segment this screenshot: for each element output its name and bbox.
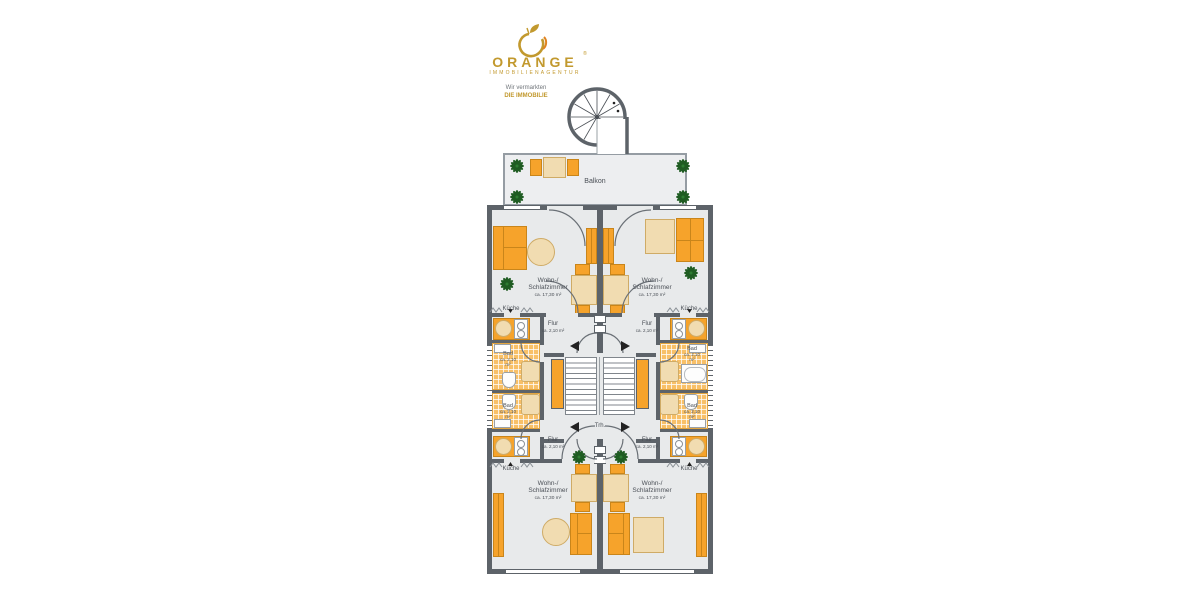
window-bottom-left <box>506 570 580 573</box>
shower-tray <box>660 361 679 382</box>
living-room-label-top-left: Wohn-/ Schlafzimmer ca. 17,30 m² <box>520 277 576 298</box>
door-opening <box>562 459 595 463</box>
bath-label-bottom-left: Bad ca. 2,10 m² <box>495 403 521 420</box>
dining-chair <box>575 264 590 275</box>
door-opening <box>605 459 638 463</box>
rug-bottom-right <box>633 517 664 553</box>
hall-label-bottom-right: Flur ca. 2,10 m² <box>630 437 664 449</box>
shaft-right <box>636 359 649 409</box>
door-opening <box>540 420 544 437</box>
stair-wall-stub <box>544 353 564 357</box>
door-opening <box>680 313 696 317</box>
balcony-door-opening-right <box>617 206 653 210</box>
door-opening <box>540 345 544 362</box>
brand-name: ORANGE <box>475 54 595 70</box>
dining-chair <box>575 464 590 474</box>
door-opening <box>546 313 578 317</box>
bath-label-top-right: Bad ca. 2,10 m² <box>679 346 705 363</box>
door-opening <box>504 459 520 463</box>
stair-flight-left <box>565 357 597 415</box>
window-top-left <box>504 206 540 209</box>
shaft-box <box>594 315 606 323</box>
shaft-box <box>594 446 606 454</box>
balcony-label: Balkon <box>557 178 633 186</box>
balcony-chair-left <box>530 159 542 176</box>
stove <box>672 319 686 339</box>
wall-h <box>492 340 540 343</box>
kitchen-label-bottom-right: Küche <box>672 466 706 473</box>
kitchen-label-top-right: Küche <box>672 306 706 313</box>
brand-subtitle: IMMOBILIENAGENTUR <box>475 71 595 77</box>
bath-label-top-left: Bad ca. 2,10 m² <box>495 351 521 368</box>
bath-sink <box>689 419 706 428</box>
stair-divider <box>599 357 600 415</box>
door-opening <box>656 345 660 362</box>
balcony-door-opening-left <box>547 206 583 210</box>
sofa-top-left <box>493 226 527 270</box>
bath-label-bottom-right: Bad ca. 2,10 m² <box>679 403 705 420</box>
brand-tagline-line2: DIE IMMOBILIE <box>484 93 568 100</box>
stairwell-label: Trh. <box>584 423 616 430</box>
balcony-table <box>543 157 566 178</box>
kitchen-sink <box>688 320 705 337</box>
wall-h <box>492 390 540 393</box>
bed-frame-top-right <box>676 218 704 262</box>
kitchen-label-top-left: Küche <box>494 306 528 313</box>
round-table-top-left <box>527 238 555 266</box>
dining-chair <box>575 502 590 512</box>
kitchen-sink <box>495 438 512 455</box>
shower-tray <box>521 361 540 382</box>
hall-label-top-left: Flur ca. 2,10 m² <box>536 321 570 333</box>
stove <box>514 437 528 456</box>
shaft-box <box>594 325 606 333</box>
spiral-staircase <box>569 89 627 154</box>
round-table-bottom-left <box>542 518 570 546</box>
door-opening <box>622 313 654 317</box>
wall-h <box>660 429 708 432</box>
stove <box>672 437 686 456</box>
brand-logo-icon <box>519 24 546 56</box>
door-opening <box>504 313 520 317</box>
sofa-bottom-left <box>570 513 592 555</box>
window-side-left <box>487 346 492 428</box>
kitchen-sink <box>688 438 705 455</box>
stove <box>514 319 528 339</box>
balcony-chair-right <box>567 159 579 176</box>
shower-tray <box>521 394 540 415</box>
living-room-label-top-right: Wohn-/ Schlafzimmer ca. 17,30 m² <box>624 277 680 298</box>
bath-sink <box>494 419 511 428</box>
stair-flight-right <box>603 357 635 415</box>
living-room-label-bottom-left: Wohn-/ Schlafzimmer ca. 17,30 m² <box>520 480 576 501</box>
door-opening <box>656 420 660 437</box>
toilet <box>502 372 516 388</box>
window-side-right <box>708 346 713 428</box>
living-room-label-bottom-right: Wohn-/ Schlafzimmer ca. 17,30 m² <box>624 480 680 501</box>
wardrobe-bottom-left <box>493 493 504 557</box>
window-top-right <box>660 206 696 209</box>
wardrobe-bottom-right <box>696 493 707 557</box>
bed-mattress-top-right <box>645 219 675 254</box>
dining-chair <box>610 264 625 275</box>
dining-chair <box>610 464 625 474</box>
dining-chair <box>610 502 625 512</box>
wardrobe-top-left <box>586 228 597 264</box>
shaft-left <box>551 359 564 409</box>
kitchen-sink <box>495 320 512 337</box>
wardrobe-top-right <box>603 228 614 264</box>
kitchen-label-bottom-left: Küche <box>494 466 528 473</box>
door-opening <box>680 459 696 463</box>
hall-label-top-right: Flur ca. 2,10 m² <box>630 321 664 333</box>
window-bottom-right <box>620 570 694 573</box>
brand-tagline-line1: Wir vermarkten <box>484 85 568 92</box>
hall-label-bottom-left: Flur ca. 2,10 m² <box>536 437 570 449</box>
shower-tray <box>660 394 679 415</box>
floorplan-page: ORANGE ® IMMOBILIENAGENTUR Wir vermarkte… <box>0 0 1200 600</box>
sofa-bottom-right <box>608 513 630 555</box>
bathtub <box>681 364 707 383</box>
wall-h <box>660 390 708 393</box>
stair-wall-stub <box>636 353 656 357</box>
wall-h <box>492 429 540 432</box>
registered-mark: ® <box>580 52 590 58</box>
wall-h <box>660 340 708 343</box>
